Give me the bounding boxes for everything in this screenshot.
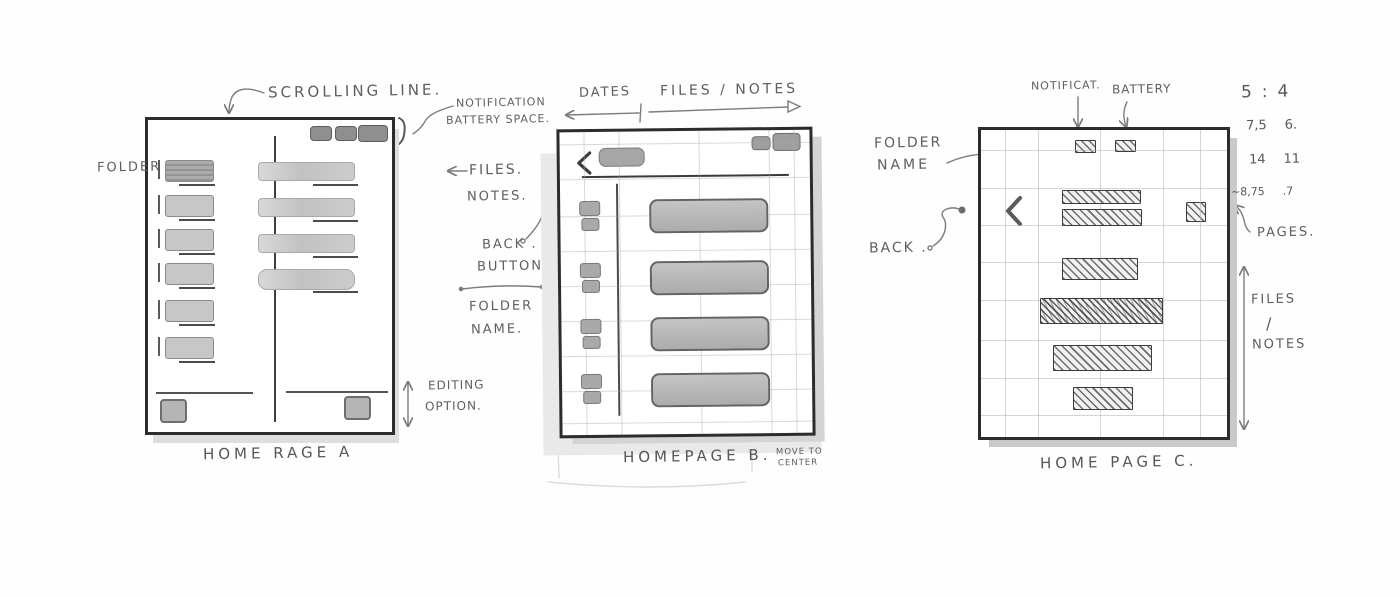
folder-row-tick	[158, 263, 160, 282]
grid-line-horizontal	[562, 354, 812, 358]
caption-homepage-b: HOMEPAGE B.	[623, 446, 772, 467]
file-note-bar	[650, 316, 769, 351]
ratio-right: 4	[1277, 82, 1290, 102]
date-badge	[581, 374, 602, 389]
notes-label: NOTES.	[467, 188, 528, 204]
move-to-label: MOVE TO	[776, 447, 823, 458]
folder-row-tick	[158, 300, 160, 319]
grid-line-horizontal	[981, 150, 1227, 151]
wireframe-b-screen	[559, 130, 812, 436]
grid-line-vertical	[1163, 130, 1164, 437]
pages-label: PAGES.	[1257, 224, 1316, 240]
folder-row	[165, 160, 214, 182]
grid-line-vertical	[793, 130, 797, 433]
wireframe-c-screen	[981, 130, 1227, 437]
file-note-bar-hatched	[1053, 345, 1152, 371]
date-badge	[582, 280, 600, 293]
back-label: BACK .	[869, 239, 928, 256]
battery-space-label: BATTERY SPACE.	[446, 112, 550, 127]
date-badge	[579, 201, 600, 216]
notification-label: NOTIFICATION	[456, 95, 546, 110]
editing-option-button-left	[160, 399, 187, 423]
folder-row	[165, 300, 214, 322]
grid-line-horizontal	[981, 340, 1227, 341]
file-note-bar	[651, 372, 770, 407]
files-notes-arrowhead-b	[788, 101, 800, 112]
folder-row-underline	[179, 287, 215, 289]
grid-line-vertical	[1005, 130, 1006, 437]
grid-line-horizontal	[562, 421, 812, 425]
date-badge	[583, 391, 601, 404]
files-notes-arrow-b	[649, 107, 788, 112]
files-notes-label: FILES / NOTES	[660, 81, 798, 99]
folder-row-underline	[179, 361, 215, 363]
back-label: BACK .	[482, 237, 538, 253]
ratio-separator: :	[1262, 82, 1270, 102]
folder-label: FOLDER	[469, 298, 533, 314]
back-label-dot	[928, 246, 932, 250]
sketch-canvas: SCROLLING LINE. NOTIFICATION BATTERY SPA…	[0, 0, 1400, 597]
folder-row-underline	[179, 253, 215, 255]
file-note-row	[258, 198, 355, 217]
measurement-row: 7,56.	[1246, 118, 1297, 134]
file-note-row	[258, 269, 355, 290]
dates-arrow	[567, 113, 639, 115]
name-label: NAME	[877, 157, 930, 174]
folder-name-pill	[599, 147, 645, 166]
file-note-row	[258, 234, 355, 253]
footer-divider-right	[286, 391, 388, 393]
grid-line-horizontal	[981, 378, 1227, 379]
notification-pill	[310, 126, 332, 141]
date-badge	[581, 218, 599, 231]
annotation-divider	[462, 286, 541, 289]
wireframe-c	[978, 127, 1230, 440]
name-label: NAME.	[471, 322, 523, 338]
option-label: OPTION.	[425, 399, 482, 414]
folder-row	[165, 195, 214, 217]
folder-row-tick	[158, 195, 160, 214]
scrolling-line-label: SCROLLING LINE.	[268, 80, 443, 101]
file-note-bar-hatched	[1062, 209, 1142, 226]
folder-label: FOLDER	[97, 159, 161, 175]
file-note-underline	[313, 184, 358, 186]
ratio-note: 5:4	[1241, 82, 1291, 103]
measurement-value: 7,5	[1246, 118, 1267, 133]
measurement-value: 6.	[1285, 118, 1298, 133]
pages-connector	[1236, 206, 1250, 232]
battery-arrow	[1124, 102, 1127, 126]
annotation-divider-dot-left	[459, 287, 462, 290]
file-note-bar-hatched	[1062, 190, 1141, 204]
battery-label: BATTERY	[1112, 81, 1172, 96]
measurement-value: 11	[1283, 152, 1300, 167]
wireframe-b	[556, 127, 815, 439]
file-note-bar-hatched	[1040, 298, 1163, 324]
date-badge	[580, 319, 601, 334]
caption-home-page-c: HOME PAGE C.	[1040, 452, 1198, 473]
files-label: FILES	[1251, 292, 1296, 308]
wireframe-a-screen	[148, 120, 392, 432]
folder-row	[165, 337, 214, 359]
caption-b-guide-bottom	[548, 482, 745, 487]
grid-line-horizontal	[981, 415, 1227, 416]
grid-line-vertical	[1200, 130, 1201, 437]
notes-label: NOTES	[1252, 337, 1307, 353]
battery-pill	[358, 125, 388, 142]
editing-option-button-right	[344, 396, 371, 420]
back-connector-c	[933, 208, 959, 246]
editing-label: EDITING	[428, 378, 485, 393]
slash-label: /	[1266, 314, 1274, 333]
notification-pill	[335, 126, 357, 141]
file-note-underline	[313, 220, 358, 222]
ratio-left: 5	[1241, 82, 1254, 102]
file-note-bar-hatched	[1062, 258, 1138, 280]
folder-row	[165, 263, 214, 285]
file-note-bar	[649, 198, 768, 233]
folder-row-underline	[179, 324, 215, 326]
caption-home-page-a: HOME RAGE A	[203, 443, 354, 464]
pages-indicator	[1186, 202, 1206, 222]
back-connector-end-dot	[959, 207, 966, 214]
measurement-value: .7	[1283, 184, 1294, 197]
folder-row-underline	[179, 184, 215, 186]
files-label: FILES.	[469, 162, 523, 179]
folder-row	[165, 229, 214, 251]
folder-row-tick	[158, 229, 160, 248]
dates-label: DATES	[579, 84, 632, 101]
folder-row-tick	[158, 337, 160, 356]
measurement-value: 14	[1249, 152, 1266, 167]
grid-line-horizontal	[981, 188, 1227, 189]
measurement-row: 1411	[1249, 152, 1300, 168]
folder-row-underline	[179, 219, 215, 221]
grid-line-horizontal	[561, 249, 811, 253]
file-note-underline	[313, 256, 358, 258]
center-label: CENTER	[778, 458, 818, 469]
file-note-row	[258, 162, 355, 181]
grid-line-vertical	[1038, 130, 1039, 437]
file-note-bar-hatched	[1073, 387, 1133, 410]
scrolling-line-arrow	[229, 89, 264, 112]
date-badge	[583, 336, 601, 349]
button-label: BUTTON	[477, 258, 543, 274]
measurement-row: ~8,75.7	[1231, 184, 1293, 198]
wireframe-a	[145, 117, 395, 435]
notificat-label: NOTIFICAT.	[1031, 78, 1101, 92]
file-note-underline	[313, 291, 358, 293]
date-badge	[580, 263, 601, 278]
folder-label: FOLDER	[874, 134, 943, 151]
dates-arrow-tick	[640, 104, 641, 122]
file-note-bar	[650, 260, 769, 295]
measurement-value: ~8,75	[1231, 185, 1265, 199]
footer-divider-left	[156, 392, 253, 394]
notification-pill	[1075, 140, 1096, 153]
notification-bracket	[396, 118, 405, 146]
